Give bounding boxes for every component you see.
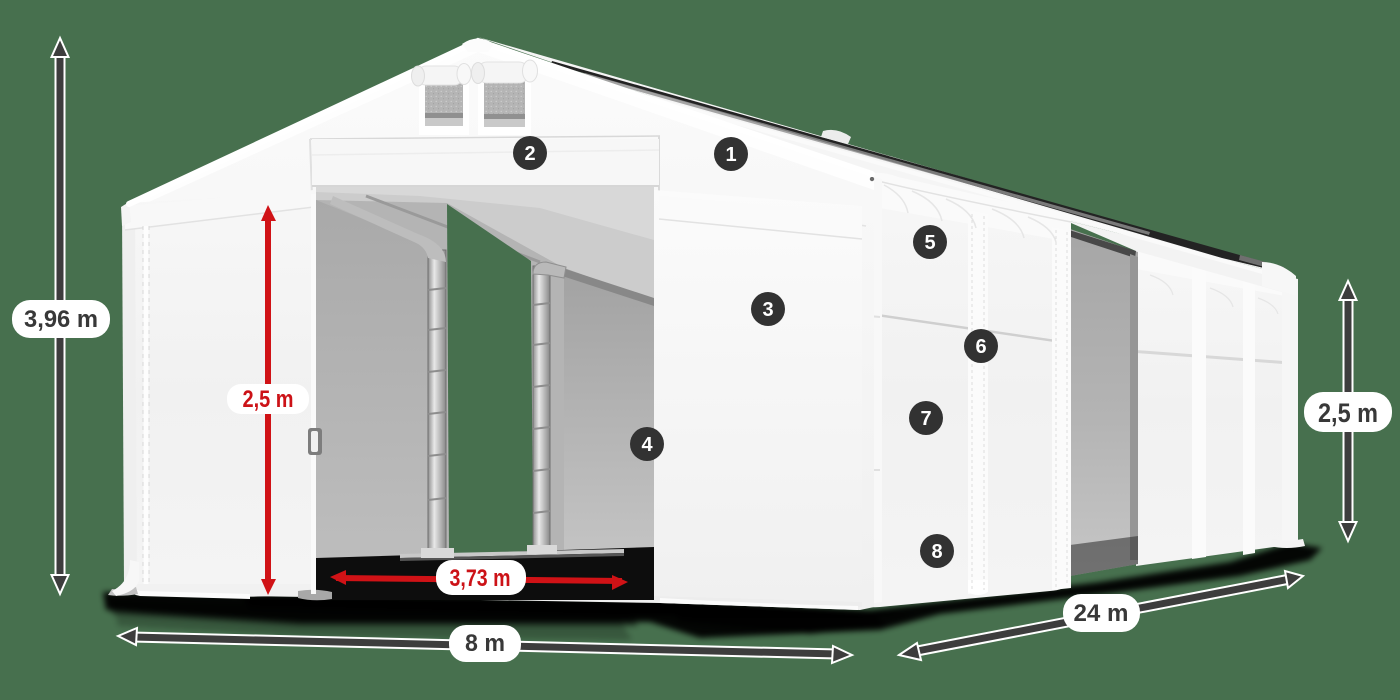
svg-text:7: 7 — [920, 408, 931, 430]
svg-text:2: 2 — [524, 143, 535, 165]
svg-text:3,73 m: 3,73 m — [450, 565, 511, 592]
svg-text:3,96 m: 3,96 m — [24, 306, 98, 333]
svg-text:1: 1 — [725, 144, 736, 166]
svg-text:2,5 m: 2,5 m — [243, 386, 294, 413]
svg-text:5: 5 — [924, 232, 935, 254]
svg-text:8 m: 8 m — [465, 630, 505, 657]
svg-text:8: 8 — [931, 541, 942, 563]
svg-text:6: 6 — [975, 336, 986, 358]
svg-text:24 m: 24 m — [1074, 600, 1129, 627]
svg-text:4: 4 — [641, 434, 653, 456]
svg-text:2,5 m: 2,5 m — [1318, 398, 1378, 428]
svg-text:3: 3 — [762, 299, 773, 321]
